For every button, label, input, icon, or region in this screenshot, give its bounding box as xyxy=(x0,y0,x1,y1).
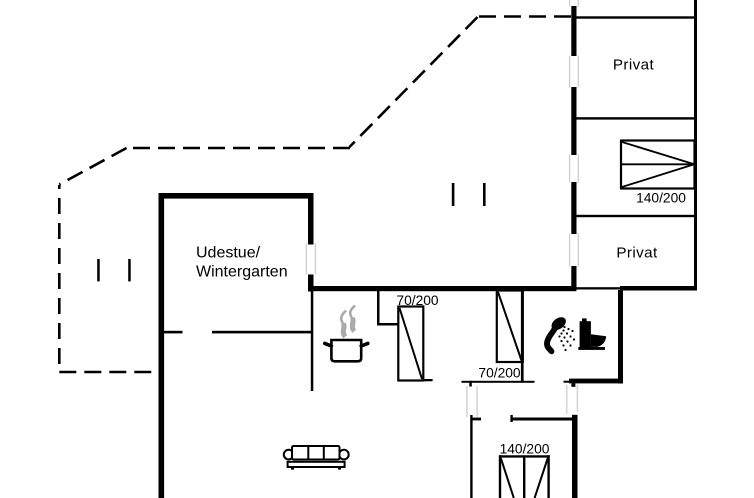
svg-text:Privat: Privat xyxy=(616,244,658,261)
svg-text:140/200: 140/200 xyxy=(636,191,686,206)
svg-text:Privat: Privat xyxy=(613,57,655,74)
svg-text:Wintergarten: Wintergarten xyxy=(196,264,288,281)
svg-text:70/200: 70/200 xyxy=(396,293,439,308)
svg-text:Udestue/: Udestue/ xyxy=(196,245,261,262)
svg-text:140/200: 140/200 xyxy=(500,441,550,456)
svg-text:70/200: 70/200 xyxy=(478,365,521,380)
